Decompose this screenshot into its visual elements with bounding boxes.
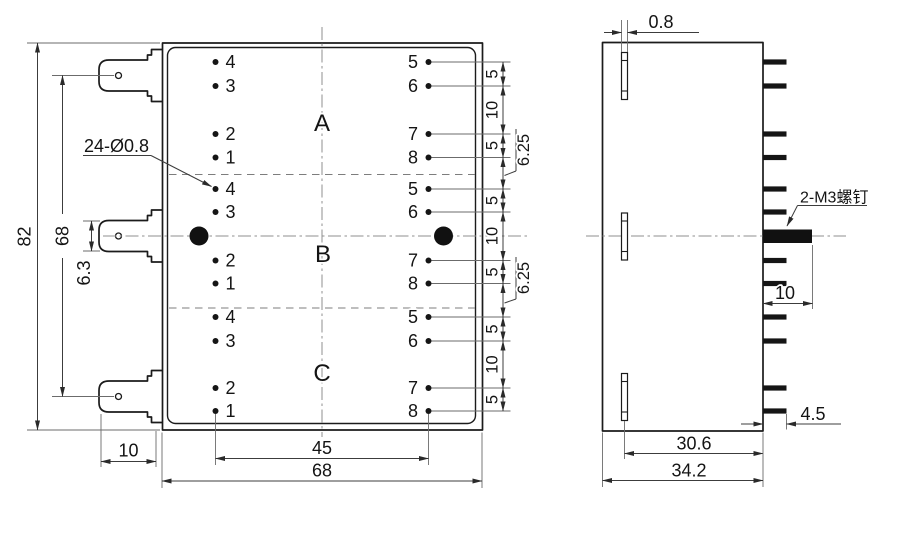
- dim-text-6-25: 6.25: [515, 262, 533, 294]
- pin-label: 2: [226, 251, 236, 271]
- pin-label: 3: [226, 76, 236, 96]
- pin-label: 8: [408, 148, 418, 168]
- dim-section-gap-1: 6.25: [505, 129, 534, 176]
- dim-tab-width: 6.3: [74, 221, 100, 286]
- pin-label: 4: [226, 179, 236, 199]
- pin-label: 2: [226, 378, 236, 398]
- pin-label: 1: [226, 401, 236, 421]
- pin-label: 6: [408, 331, 418, 351]
- dim-text-6-25: 6.25: [515, 134, 533, 166]
- dim-text-4-5: 4.5: [800, 404, 825, 424]
- pin-label: 7: [408, 251, 418, 271]
- side-tab-strips: [622, 53, 628, 421]
- chain-dim-text: 5: [484, 395, 502, 404]
- dim-tab-thickness: 0.8: [604, 12, 699, 52]
- mounting-hole-right: [434, 227, 453, 246]
- side-tab-middle: [622, 213, 628, 260]
- dim-section-gap-2: 6.25: [505, 257, 534, 303]
- chain-dim-text: 10: [484, 355, 502, 373]
- pin-label: 5: [408, 307, 418, 327]
- pin-label: 6: [408, 202, 418, 222]
- pin-label: 3: [226, 331, 236, 351]
- dim-text-30-6: 30.6: [676, 434, 711, 454]
- chain-dim-text: 5: [484, 267, 502, 276]
- mounting-hole-left: [190, 227, 209, 246]
- side-tab-bottom: [622, 374, 628, 421]
- side-view: 0.8 2-M3螺钉 10 4.5 30.6: [586, 12, 868, 487]
- chain-dim-text: 5: [484, 69, 502, 78]
- dim-text-68: 68: [53, 226, 73, 246]
- dim-text-6-3: 6.3: [74, 260, 94, 285]
- drawing-svg: 4 3 2 1 4 3 2 1 4 3 2 1 5 6 7 8 5 6 7 8 …: [0, 0, 913, 543]
- pin-label: 3: [226, 202, 236, 222]
- pin-label: 8: [408, 401, 418, 421]
- hole-callout-text: 24-Ø0.8: [84, 136, 149, 156]
- dim-pin-length: 4.5: [741, 404, 841, 430]
- dim-text-0-8: 0.8: [648, 12, 673, 32]
- screw-callout: 2-M3螺钉: [787, 189, 868, 227]
- pin-label: 8: [408, 274, 418, 294]
- chain-dim-text: 5: [484, 324, 502, 333]
- front-view: 4 3 2 1 4 3 2 1 4 3 2 1 5 6 7 8 5 6 7 8 …: [15, 27, 534, 488]
- screw-callout-text: 2-M3螺钉: [800, 189, 868, 207]
- pin-label: 1: [226, 274, 236, 294]
- pin-label: 1: [226, 148, 236, 168]
- pin-label: 5: [408, 179, 418, 199]
- pin-label: 7: [408, 378, 418, 398]
- dim-pin-pitch-chain: 5 10 5 5 10 5 5 10 5: [484, 62, 504, 411]
- side-tab-top: [622, 53, 628, 100]
- chain-dim-text: 5: [484, 141, 502, 150]
- section-label-a: A: [314, 110, 330, 137]
- pin-label: 5: [408, 52, 418, 72]
- pin-label: 4: [226, 52, 236, 72]
- pin-label: 6: [408, 76, 418, 96]
- dim-screw-length: 10: [763, 245, 813, 309]
- chain-dim-text: 10: [484, 101, 502, 119]
- chain-dim-text: 5: [484, 196, 502, 205]
- dim-text-68-width: 68: [312, 461, 332, 481]
- pin-label: 7: [408, 124, 418, 144]
- dim-text-10-screw: 10: [775, 283, 795, 303]
- dim-text-82: 82: [15, 226, 35, 246]
- pin-label: 2: [226, 124, 236, 144]
- dim-text-34-2: 34.2: [671, 461, 706, 481]
- section-label-c: C: [313, 360, 330, 387]
- chain-dim-text: 10: [484, 227, 502, 245]
- dim-text-45: 45: [312, 438, 332, 458]
- m3-screw-terminal: [763, 230, 812, 244]
- engineering-drawing: 4 3 2 1 4 3 2 1 4 3 2 1 5 6 7 8 5 6 7 8 …: [0, 0, 913, 543]
- hole-callout: 24-Ø0.8: [83, 136, 212, 187]
- section-label-b: B: [315, 241, 331, 268]
- dim-tab-to-back: 30.6: [625, 421, 764, 459]
- pin-label: 4: [226, 307, 236, 327]
- side-pins: [763, 59, 812, 413]
- dim-text-10: 10: [118, 441, 138, 461]
- dim-tab-length: 10: [101, 414, 156, 467]
